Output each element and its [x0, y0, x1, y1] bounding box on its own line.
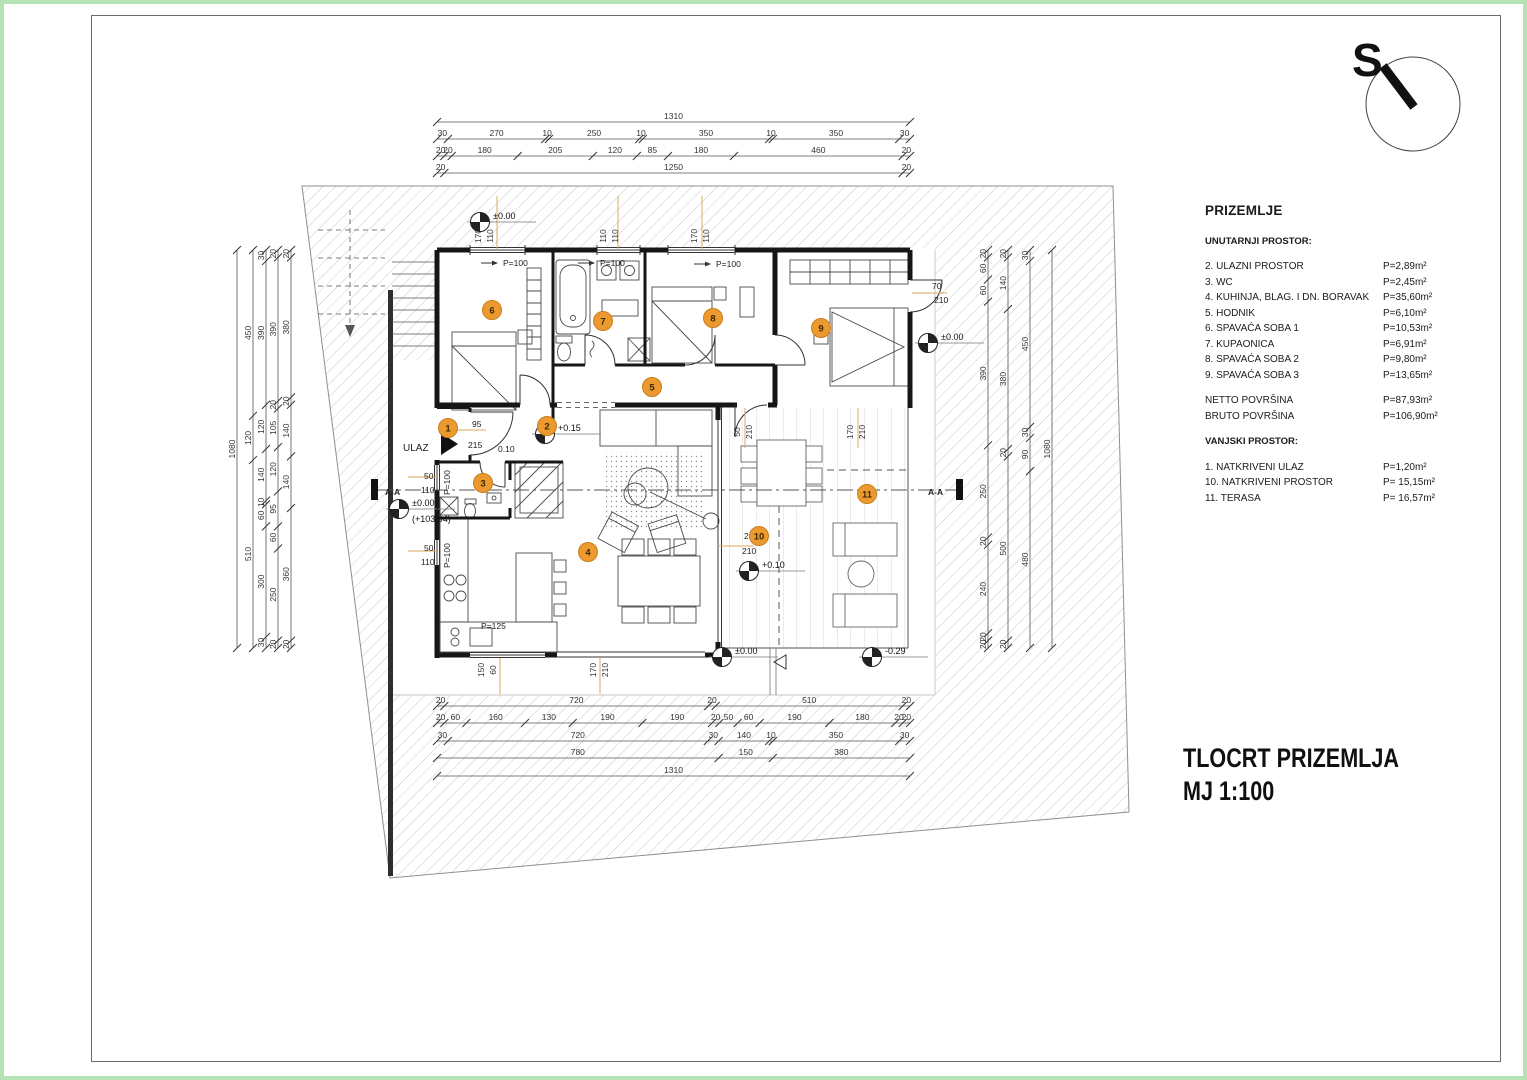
legend-row: 7. KUPAONICAP=6,91m²: [1205, 337, 1515, 353]
legend-row-value: P=13,65m²: [1383, 368, 1432, 384]
legend-row-label: 1. NATKRIVENI ULAZ: [1205, 460, 1383, 476]
legend-row-value: P=2,89m²: [1383, 259, 1427, 275]
legend-row-label: 7. KUPAONICA: [1205, 337, 1383, 353]
legend-row-label: NETTO POVRŠINA: [1205, 393, 1383, 409]
legend-row-label: 8. SPAVAĆA SOBA 2: [1205, 352, 1383, 368]
legend-row-value: P=35,60m²: [1383, 290, 1432, 306]
legend-row: 6. SPAVAĆA SOBA 1P=10,53m²: [1205, 321, 1515, 337]
legend-interior-rows: 2. ULAZNI PROSTORP=2,89m²3. WCP=2,45m²4.…: [1205, 259, 1515, 383]
legend-row-value: P=87,93m²: [1383, 393, 1432, 409]
legend-row: 2. ULAZNI PROSTORP=2,89m²: [1205, 259, 1515, 275]
legend-interior-heading: UNUTARNJI PROSTOR:: [1205, 234, 1515, 250]
legend-exterior-rows: 1. NATKRIVENI ULAZP=1,20m²10. NATKRIVENI…: [1205, 460, 1515, 507]
legend-row: 3. WCP=2,45m²: [1205, 275, 1515, 291]
legend-row-value: P=106,90m²: [1383, 409, 1438, 425]
legend-row: BRUTO POVRŠINAP=106,90m²: [1205, 409, 1515, 425]
legend-row-value: P= 15,15m²: [1383, 475, 1435, 491]
legend-row: 10. NATKRIVENI PROSTORP= 15,15m²: [1205, 475, 1515, 491]
legend-title: PRIZEMLJE: [1205, 203, 1515, 219]
drawing-scale: MJ 1:100: [1183, 775, 1399, 808]
legend-row-value: P=9,80m²: [1383, 352, 1427, 368]
legend-row: 8. SPAVAĆA SOBA 2P=9,80m²: [1205, 352, 1515, 368]
drawing-sheet: S 13103027010250103501035030202018020512…: [0, 0, 1527, 1080]
legend-row: 5. HODNIKP=6,10m²: [1205, 306, 1515, 322]
legend-row-label: 5. HODNIK: [1205, 306, 1383, 322]
legend-row: 9. SPAVAĆA SOBA 3P=13,65m²: [1205, 368, 1515, 384]
legend-row-label: 4. KUHINJA, BLAG. I DN. BORAVAK: [1205, 290, 1383, 306]
legend-row: 1. NATKRIVENI ULAZP=1,20m²: [1205, 460, 1515, 476]
legend-row-value: P=6,91m²: [1383, 337, 1427, 353]
legend-row-label: 11. TERASA: [1205, 491, 1383, 507]
legend-exterior-heading: VANJSKI PROSTOR:: [1205, 434, 1515, 450]
legend: PRIZEMLJE UNUTARNJI PROSTOR: 2. ULAZNI P…: [1205, 203, 1515, 506]
legend-total-rows: NETTO POVRŠINAP=87,93m²BRUTO POVRŠINAP=1…: [1205, 393, 1515, 424]
legend-row-label: 10. NATKRIVENI PROSTOR: [1205, 475, 1383, 491]
legend-row-label: BRUTO POVRŠINA: [1205, 409, 1383, 425]
legend-row: 4. KUHINJA, BLAG. I DN. BORAVAKP=35,60m²: [1205, 290, 1515, 306]
drawing-title: TLOCRT PRIZEMLJA: [1183, 742, 1399, 775]
legend-row-value: P=10,53m²: [1383, 321, 1432, 337]
legend-row-value: P=1,20m²: [1383, 460, 1427, 476]
sheet-border: [91, 15, 1501, 1062]
legend-row-label: 3. WC: [1205, 275, 1383, 291]
legend-row-value: P=6,10m²: [1383, 306, 1427, 322]
legend-row-value: P=2,45m²: [1383, 275, 1427, 291]
legend-row-label: 2. ULAZNI PROSTOR: [1205, 259, 1383, 275]
legend-row-label: 6. SPAVAĆA SOBA 1: [1205, 321, 1383, 337]
legend-row: 11. TERASAP= 16,57m²: [1205, 491, 1515, 507]
title-block: TLOCRT PRIZEMLJA MJ 1:100: [1183, 742, 1399, 808]
legend-row: NETTO POVRŠINAP=87,93m²: [1205, 393, 1515, 409]
legend-row-value: P= 16,57m²: [1383, 491, 1435, 507]
legend-row-label: 9. SPAVAĆA SOBA 3: [1205, 368, 1383, 384]
